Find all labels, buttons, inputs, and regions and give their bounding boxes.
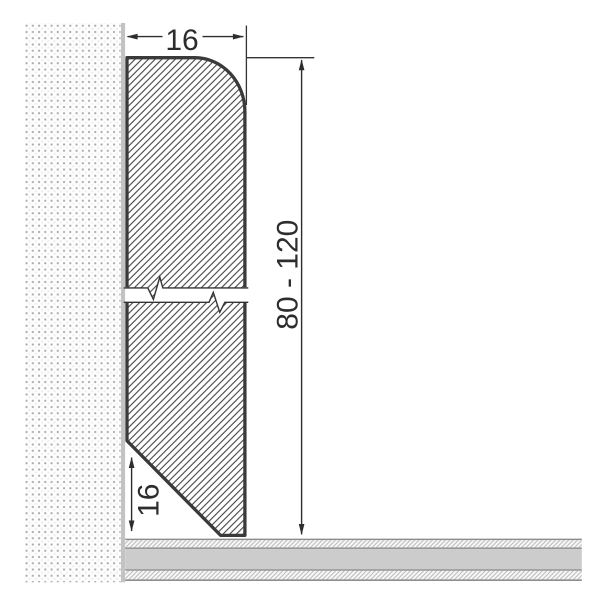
- svg-text:16: 16: [132, 484, 165, 517]
- svg-text:16: 16: [165, 24, 198, 57]
- svg-text:80 - 120: 80 - 120: [271, 220, 304, 330]
